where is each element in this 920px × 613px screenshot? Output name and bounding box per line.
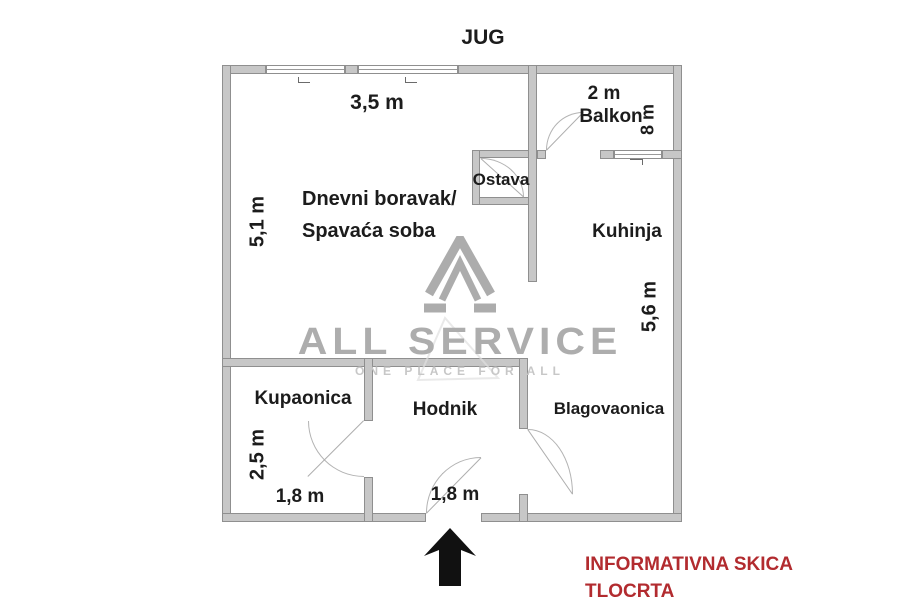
dim-living-height: 5,1 m [247,182,270,262]
wall-balcony-2 [600,150,614,159]
window-sill-mark [630,159,643,165]
wall-bath-hall-2 [364,477,373,522]
dim-bathroom-width: 1,8 m [240,486,360,508]
disclaimer-line1: INFORMATIVNA SKICA [585,551,793,578]
dim-hallway-width: 1,8 m [395,484,515,506]
wall-top-2 [345,65,358,74]
dim-bathroom-height: 2,5 m [247,415,270,495]
disclaimer-text: INFORMATIVNA SKICA TLOCRTA [585,551,793,605]
room-label-bathroom: Kupaonica [228,388,378,410]
compass-label: JUG [423,26,543,50]
window-living-1 [266,65,345,74]
wall-balcony-1 [537,150,546,159]
watermark-brand: ALL SERVICE [258,320,662,363]
wall-hall-dining-2 [519,494,528,522]
wall-bottom-left [222,513,426,522]
wall-bottom-right [481,513,682,522]
wall-balcony-3 [662,150,682,159]
disclaimer-line2: TLOCRTA [585,578,793,605]
all-service-logo-icon [421,236,501,316]
wall-left [222,65,231,522]
room-label-kitchen: Kuhinja [567,221,687,243]
room-label-hallway: Hodnik [385,399,505,421]
wall-storage-bottom [472,197,529,205]
wall-top-3 [458,65,682,74]
room-label-dining: Blagovaonica [534,399,684,419]
window-living-2 [358,65,458,74]
floor-plan-image: JUG 3,5 m 5,1 m Dnevni boravak/ Spav [0,0,920,613]
dim-balcony-side: 8 m [638,80,659,160]
wall-right [673,65,682,522]
room-label-living-line1: Dnevni boravak/ [302,183,457,215]
north-arrow-icon [418,526,482,588]
watermark-tagline: ONE PLACE FOR ALL [310,364,610,378]
room-label-storage: Ostava [446,170,556,190]
window-sill-mark [405,77,417,83]
dim-living-width: 3,5 m [317,91,437,115]
window-sill-mark [298,77,310,83]
